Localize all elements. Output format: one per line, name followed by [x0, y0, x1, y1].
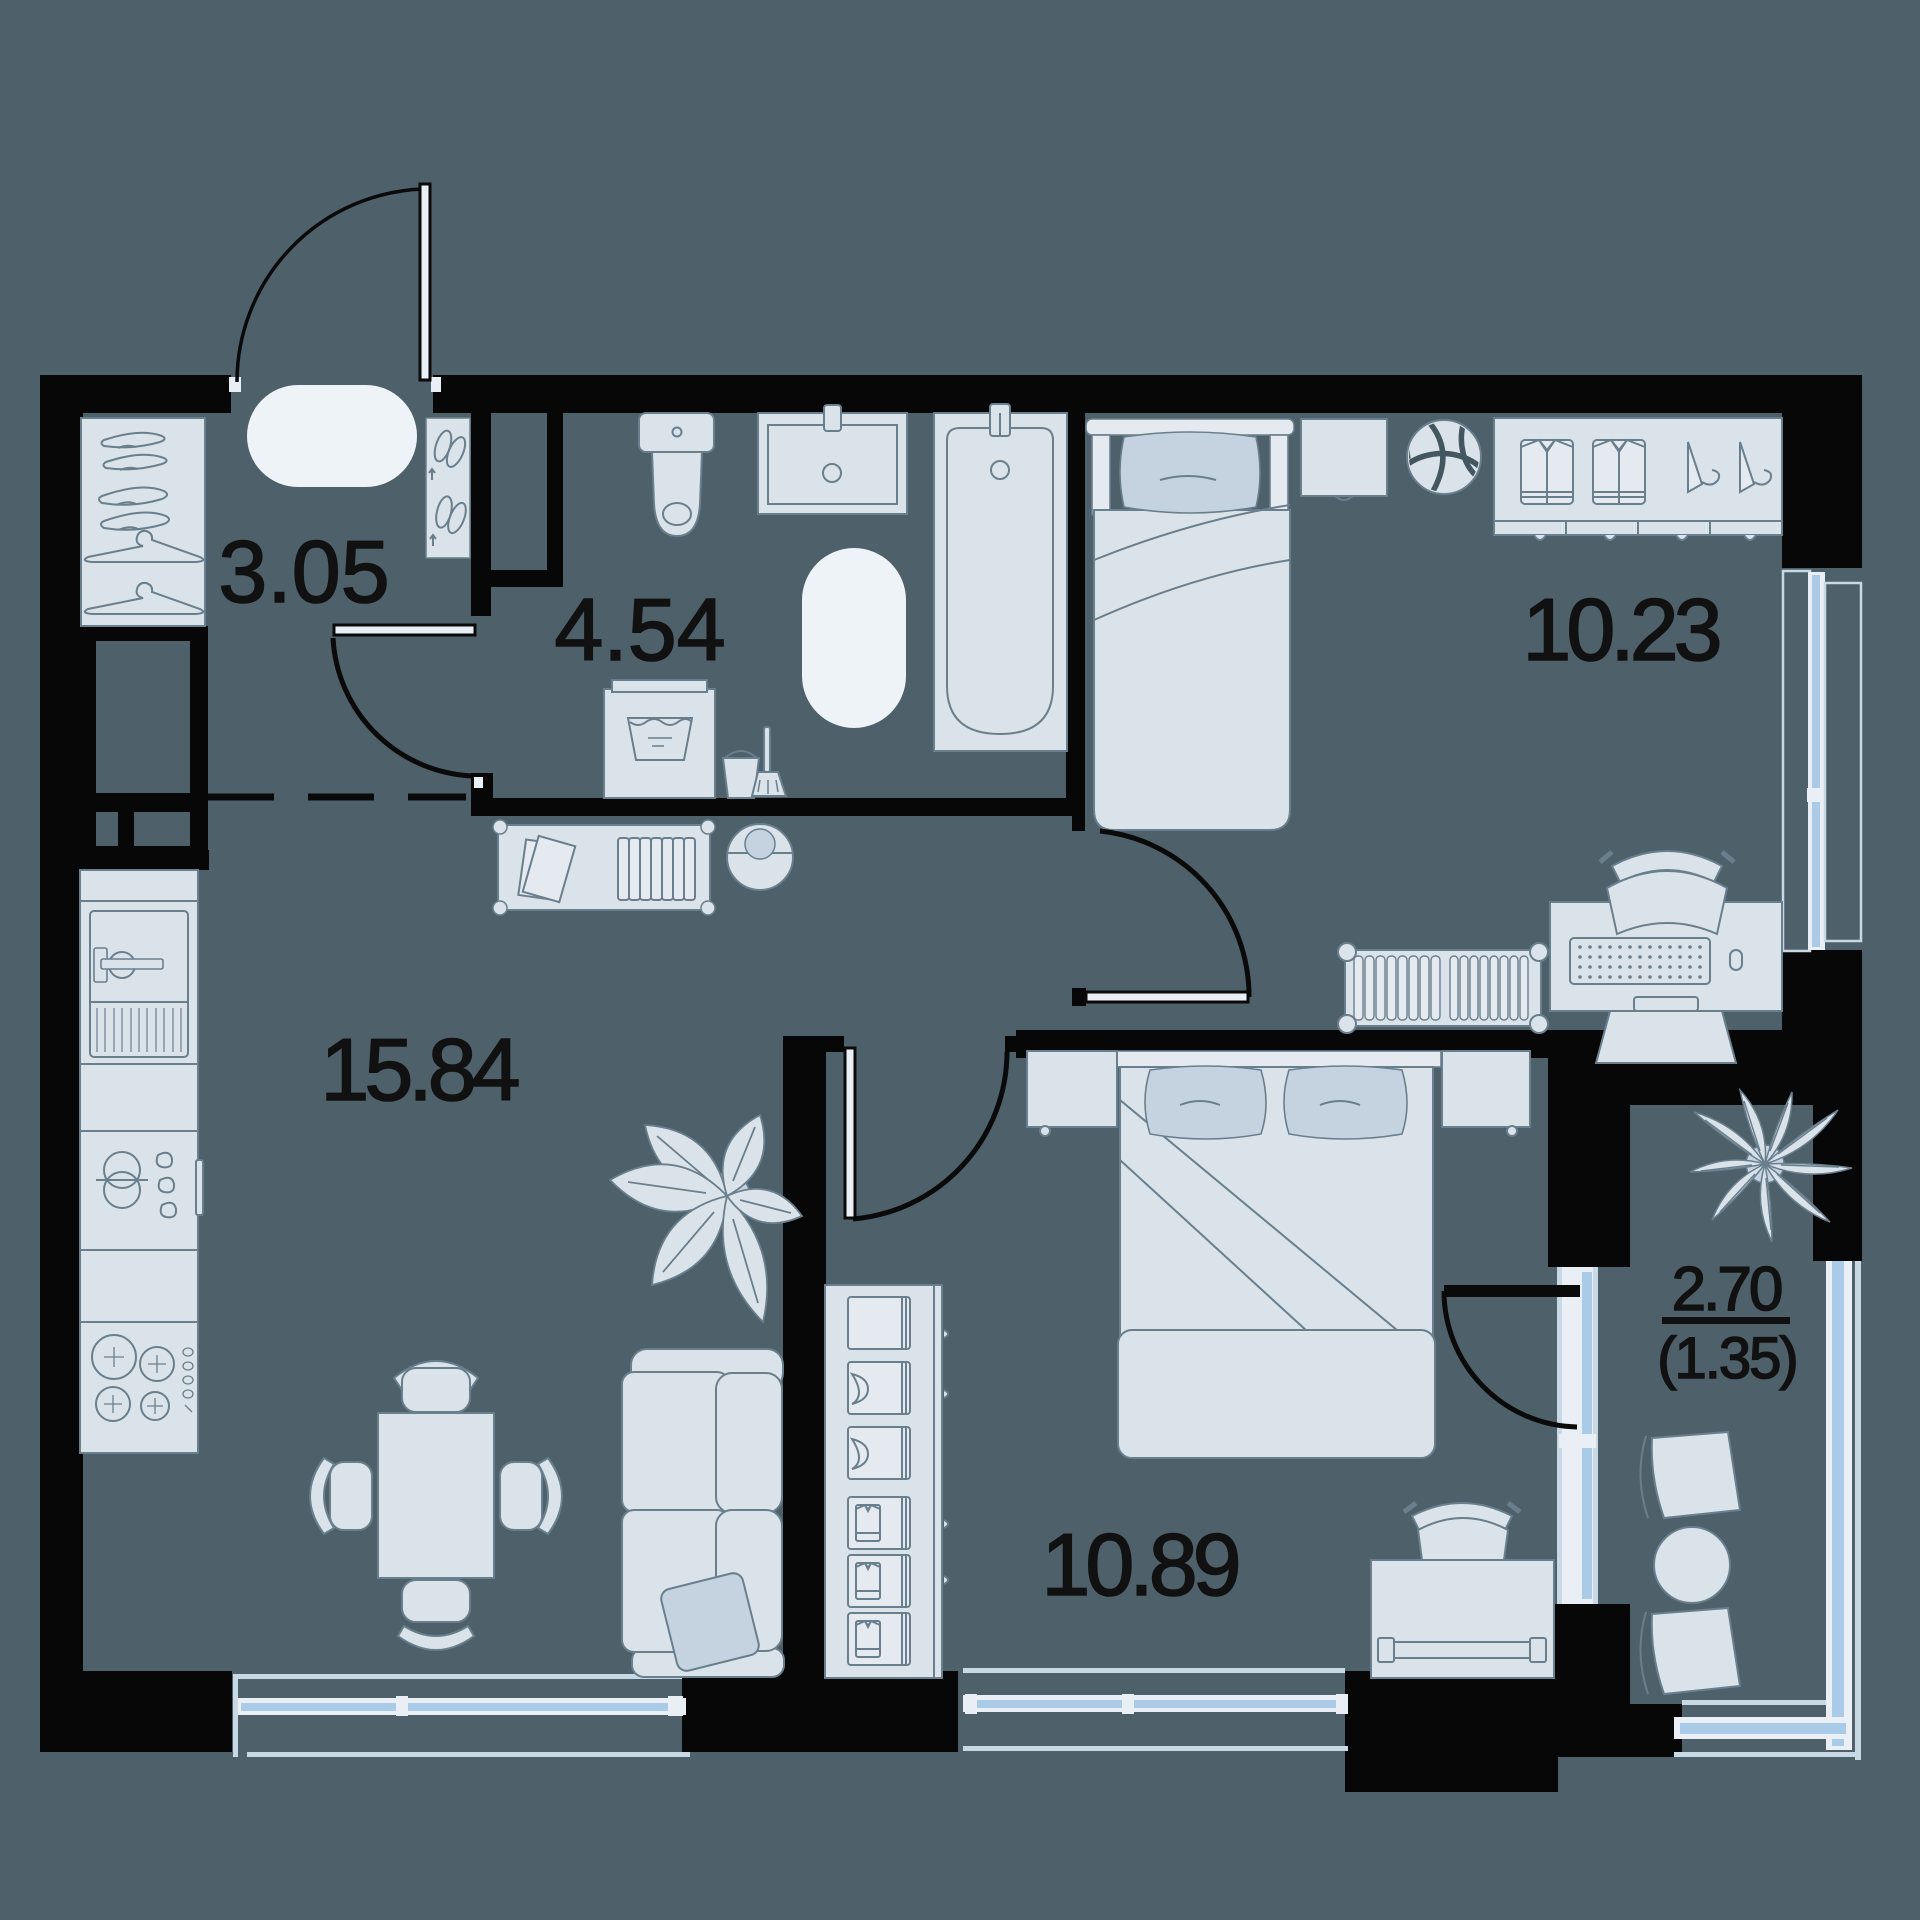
svg-text:15.84: 15.84: [320, 1020, 518, 1119]
svg-text:3.05: 3.05: [218, 522, 389, 621]
svg-text:10.89: 10.89: [1041, 1515, 1237, 1614]
svg-text:10.23: 10.23: [1522, 580, 1719, 679]
svg-text:2.70: 2.70: [1672, 1255, 1782, 1324]
svg-text:(1.35): (1.35): [1657, 1326, 1797, 1391]
svg-text:4.54: 4.54: [554, 580, 725, 679]
